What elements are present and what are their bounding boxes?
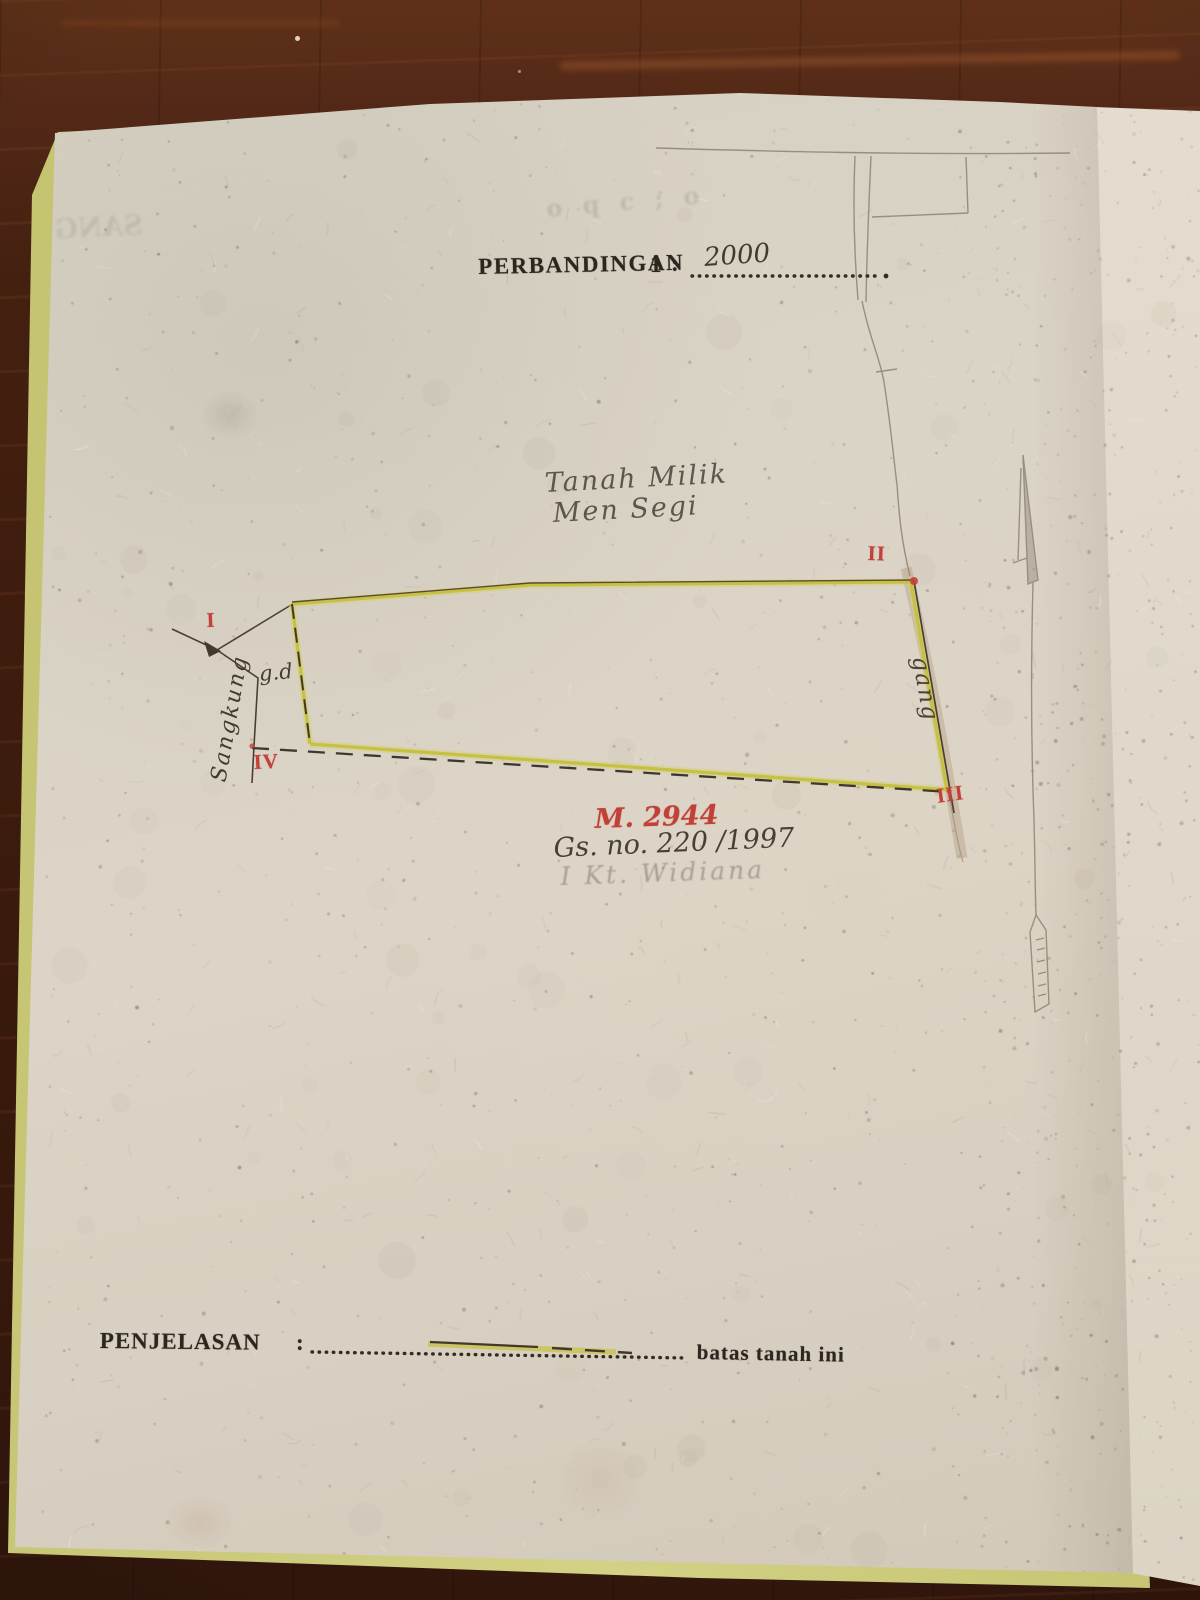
scale-colon: : xyxy=(671,251,679,277)
boundary-highlight xyxy=(292,582,950,790)
corner-marker-2: II xyxy=(867,541,886,567)
parcel-map-drawing xyxy=(0,0,1200,1600)
corner-two-red-dot xyxy=(910,577,918,585)
pencil-road-sketch xyxy=(656,148,1070,576)
bottom-boundary-dashed xyxy=(252,748,950,792)
corner-marker-3: III xyxy=(935,780,966,809)
corner-marker-1: I xyxy=(206,608,216,633)
corner-marker-4: IV xyxy=(253,749,280,775)
photo-scene: SANG o q c ; o PERBANDINGAN 1 : 2000 Tan… xyxy=(0,0,1200,1600)
legend-label: PENJELASAN xyxy=(100,1328,261,1356)
annotation-gd: g.d xyxy=(258,659,294,686)
parcel-boundary-yellow xyxy=(292,582,950,790)
scale-value-handwritten: 2000 xyxy=(703,238,771,273)
scale-number: 1 xyxy=(650,252,662,278)
corner-four-red-dot xyxy=(249,743,254,748)
legend-colon: : xyxy=(296,1330,304,1356)
north-arrow xyxy=(1013,455,1049,1012)
header-dotted-line-end xyxy=(884,274,889,279)
legend-boundary-text: batas tanah ini xyxy=(697,1340,845,1368)
